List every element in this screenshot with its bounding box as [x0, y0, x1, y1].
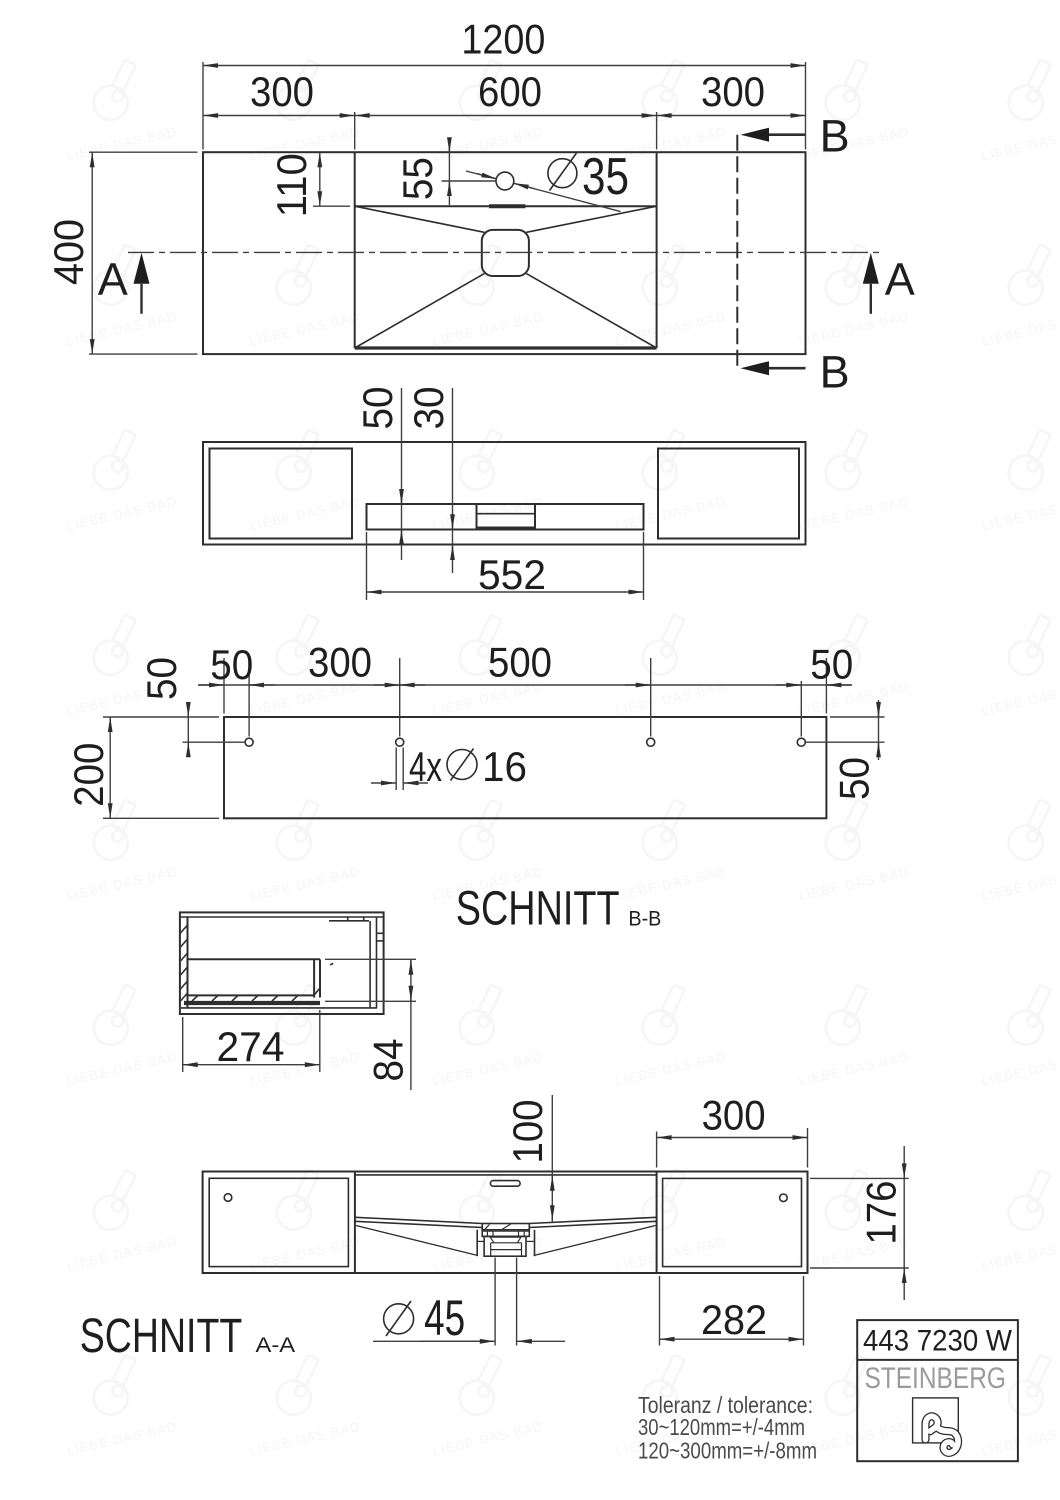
svg-text:SCHNITT: SCHNITT	[456, 882, 620, 935]
svg-text:443 7230 W: 443 7230 W	[863, 1325, 1012, 1358]
svg-text:B-B: B-B	[628, 908, 661, 931]
svg-text:SCHNITT: SCHNITT	[80, 1310, 243, 1363]
svg-text:STEINBERG: STEINBERG	[864, 1362, 1006, 1395]
svg-text:552: 552	[478, 551, 546, 598]
svg-text:282: 282	[701, 1296, 767, 1343]
svg-text:120~300mm=+/-8mm: 120~300mm=+/-8mm	[638, 1437, 817, 1463]
svg-text:A-A: A-A	[256, 1334, 296, 1357]
svg-text:45: 45	[424, 1290, 465, 1346]
svg-text:300: 300	[250, 68, 314, 115]
svg-text:274: 274	[217, 1023, 285, 1070]
svg-text:B: B	[820, 111, 850, 162]
svg-text:4x: 4x	[409, 743, 442, 790]
svg-text:300: 300	[308, 639, 372, 686]
svg-text:50: 50	[354, 387, 401, 430]
svg-text:300: 300	[701, 68, 765, 115]
svg-text:500: 500	[488, 639, 552, 686]
svg-text:300: 300	[702, 1091, 766, 1138]
svg-text:30~120mm=+/-4mm: 30~120mm=+/-4mm	[638, 1414, 805, 1440]
svg-text:B: B	[820, 346, 850, 397]
svg-text:100: 100	[504, 1100, 551, 1164]
svg-text:50: 50	[210, 641, 253, 688]
svg-text:84: 84	[365, 1039, 412, 1082]
svg-text:400: 400	[45, 219, 92, 285]
svg-text:176: 176	[858, 1181, 905, 1245]
svg-text:16: 16	[482, 743, 527, 790]
svg-text:600: 600	[478, 68, 542, 115]
svg-text:30: 30	[405, 387, 452, 430]
svg-text:1200: 1200	[461, 16, 545, 63]
svg-text:A: A	[98, 254, 128, 305]
svg-text:50: 50	[831, 757, 878, 800]
svg-text:50: 50	[138, 657, 185, 700]
svg-text:55: 55	[394, 157, 441, 200]
svg-text:50: 50	[810, 641, 853, 688]
svg-text:110: 110	[268, 153, 315, 217]
svg-text:200: 200	[65, 743, 112, 807]
svg-text:35: 35	[582, 148, 629, 206]
svg-text:A: A	[885, 254, 915, 305]
